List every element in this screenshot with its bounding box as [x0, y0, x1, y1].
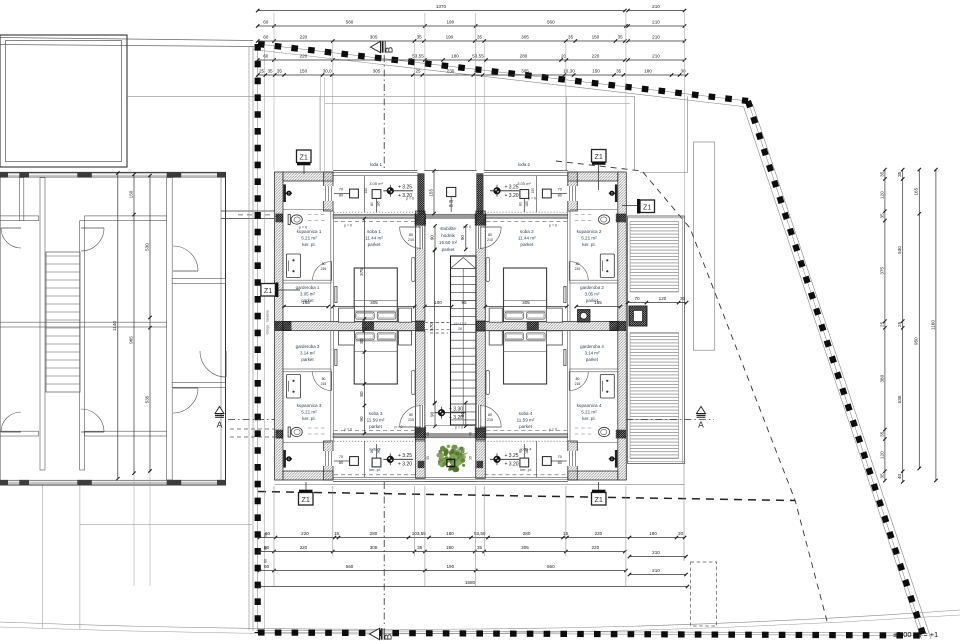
svg-text:375: 375: [879, 267, 884, 275]
svg-text:60: 60: [263, 54, 269, 59]
svg-text:1580: 1580: [465, 580, 476, 585]
svg-text:Z1: Z1: [302, 495, 310, 504]
svg-text:ker. pl.: ker. pl.: [302, 242, 316, 247]
svg-text:stubište: stubište: [440, 226, 456, 231]
svg-text:215: 215: [575, 382, 581, 386]
svg-text:210: 210: [408, 238, 414, 242]
svg-text:ker. pl.: ker. pl.: [520, 467, 532, 472]
svg-text:210: 210: [652, 20, 660, 25]
svg-text:p = 0: p = 0: [344, 428, 352, 432]
svg-text:+ 3.20: + 3.20: [505, 462, 519, 468]
svg-text:30: 30: [680, 296, 686, 301]
svg-text:965: 965: [128, 336, 133, 344]
svg-text:220: 220: [300, 35, 308, 40]
svg-text:35: 35: [277, 69, 283, 74]
svg-text:155: 155: [428, 189, 433, 197]
svg-text:parket: parket: [519, 424, 532, 429]
svg-text:165: 165: [914, 187, 919, 195]
svg-text:950: 950: [914, 337, 919, 345]
svg-text:80: 80: [488, 233, 492, 237]
svg-text:p = 0: p = 0: [528, 197, 536, 201]
svg-text:60: 60: [264, 564, 270, 569]
svg-text:560: 560: [346, 564, 354, 569]
svg-text:80: 80: [359, 338, 364, 344]
svg-text:5.21 m²: 5.21 m²: [301, 410, 317, 415]
svg-text:180: 180: [446, 531, 454, 536]
svg-text:garderoba 4: garderoba 4: [580, 344, 604, 349]
svg-text:garderoba 2: garderoba 2: [580, 285, 604, 290]
svg-text:35: 35: [897, 171, 902, 177]
svg-text:35: 35: [417, 545, 423, 550]
svg-text:parket: parket: [368, 242, 381, 247]
svg-text:lođa 2: lođa 2: [518, 162, 531, 167]
svg-text:220: 220: [300, 54, 308, 59]
svg-text:35: 35: [477, 35, 483, 40]
svg-text:90: 90: [460, 411, 465, 417]
svg-text:+ 3.25: + 3.25: [398, 453, 412, 459]
svg-text:1160: 1160: [930, 320, 935, 330]
svg-text:95: 95: [461, 300, 467, 305]
svg-text:53,55: 53,55: [412, 54, 424, 59]
svg-text:80: 80: [339, 461, 343, 465]
svg-text:305: 305: [521, 545, 529, 550]
svg-text:185: 185: [525, 201, 529, 207]
svg-text:5.21 m²: 5.21 m²: [581, 236, 597, 241]
svg-text:215: 215: [321, 267, 327, 271]
svg-text:305: 305: [370, 35, 378, 40]
svg-text:120: 120: [659, 296, 667, 301]
svg-text:3.05 m²: 3.05 m²: [300, 292, 315, 297]
svg-text:100: 100: [434, 300, 442, 305]
svg-text:60: 60: [263, 20, 269, 25]
svg-text:305: 305: [370, 545, 378, 550]
svg-text:80: 80: [359, 391, 364, 397]
svg-text:90: 90: [429, 235, 434, 241]
svg-text:35: 35: [879, 213, 884, 219]
svg-text:45: 45: [426, 432, 430, 436]
svg-text:80: 80: [449, 200, 453, 204]
svg-text:190: 190: [446, 545, 454, 550]
svg-text:B: B: [385, 46, 396, 53]
svg-text:10,30: 10,30: [563, 69, 575, 74]
svg-text:190: 190: [446, 564, 454, 569]
svg-text:garderoba 3: garderoba 3: [296, 344, 320, 349]
svg-text:60: 60: [264, 546, 268, 550]
svg-text:3.05 m²: 3.05 m²: [585, 292, 600, 297]
svg-text:35: 35: [568, 35, 574, 40]
svg-text:parket: parket: [520, 242, 533, 247]
svg-text:80: 80: [576, 262, 580, 266]
svg-text:35: 35: [616, 69, 622, 74]
svg-text:+ 3.20: + 3.20: [505, 193, 519, 199]
svg-text:ker. pl.: ker. pl.: [582, 416, 596, 421]
svg-text:60: 60: [263, 35, 269, 40]
svg-text:210: 210: [487, 238, 493, 242]
svg-text:80: 80: [576, 377, 580, 381]
svg-text:80: 80: [322, 262, 326, 266]
svg-text:25: 25: [415, 69, 421, 74]
svg-text:p = 0: p = 0: [455, 426, 463, 430]
svg-text:530: 530: [144, 243, 149, 251]
svg-text:560: 560: [547, 20, 555, 25]
svg-text:305: 305: [373, 69, 381, 74]
svg-text:60: 60: [264, 533, 268, 537]
svg-text:+ 3.25: + 3.25: [398, 184, 412, 190]
svg-text:28: 28: [458, 327, 462, 331]
svg-text:215: 215: [321, 382, 327, 386]
svg-text:35: 35: [267, 69, 273, 74]
svg-text:280: 280: [520, 54, 528, 59]
svg-text:25: 25: [897, 321, 902, 327]
svg-text:p = 0: p = 0: [344, 224, 352, 228]
svg-text:70: 70: [634, 296, 640, 301]
svg-text:3.05 m²: 3.05 m²: [369, 181, 383, 186]
svg-text:150: 150: [128, 190, 133, 198]
svg-text:kupaonica 4: kupaonica 4: [577, 403, 602, 408]
svg-text:p = 0: p = 0: [549, 428, 557, 432]
svg-text:5.21 m²: 5.21 m²: [301, 236, 317, 241]
svg-text:375: 375: [359, 268, 364, 276]
svg-text:90: 90: [429, 411, 434, 417]
svg-text:35: 35: [879, 473, 884, 479]
svg-text:210: 210: [652, 568, 660, 573]
svg-text:70: 70: [339, 188, 343, 192]
svg-text:kupaonica 3: kupaonica 3: [297, 403, 322, 408]
svg-text:parket: parket: [301, 357, 314, 362]
svg-text:35: 35: [417, 35, 423, 40]
svg-text:150: 150: [364, 188, 368, 194]
svg-text:35: 35: [469, 456, 473, 460]
svg-text:kupaonica 1: kupaonica 1: [297, 229, 322, 234]
svg-text:80: 80: [370, 202, 374, 206]
svg-text:35: 35: [879, 431, 884, 437]
svg-text:30: 30: [678, 531, 684, 536]
svg-text:70: 70: [339, 455, 343, 459]
svg-text:165: 165: [302, 300, 310, 305]
svg-text:80: 80: [339, 194, 343, 198]
svg-text:35: 35: [618, 35, 624, 40]
svg-text:210: 210: [652, 4, 660, 9]
svg-text:210: 210: [652, 550, 660, 555]
svg-text:45: 45: [469, 432, 473, 436]
svg-text:soba 3: soba 3: [369, 411, 383, 416]
svg-text:+ 3.20: + 3.20: [398, 462, 412, 468]
svg-text:5.21 m²: 5.21 m²: [581, 410, 597, 415]
svg-text:190: 190: [446, 20, 454, 25]
svg-text:35: 35: [879, 171, 884, 177]
svg-text:560: 560: [547, 564, 555, 569]
svg-text:120: 120: [879, 451, 884, 459]
svg-text:40: 40: [897, 474, 902, 480]
svg-text:Z1: Z1: [643, 203, 651, 212]
svg-text:25: 25: [879, 321, 884, 327]
svg-text:garderoba 1: garderoba 1: [296, 285, 320, 290]
svg-text:230: 230: [447, 69, 455, 74]
svg-text:150: 150: [531, 188, 535, 194]
svg-text:30: 30: [680, 69, 686, 74]
svg-text:305: 305: [370, 300, 378, 305]
svg-text:165: 165: [594, 300, 602, 305]
svg-text:80: 80: [558, 194, 562, 198]
svg-text:4.10 m²: 4.10 m²: [455, 452, 469, 456]
svg-text:60: 60: [264, 559, 268, 563]
svg-text:Z1: Z1: [264, 286, 272, 295]
svg-text:25: 25: [259, 69, 265, 74]
svg-text:215: 215: [487, 418, 493, 422]
svg-text:15.60 m²: 15.60 m²: [439, 240, 458, 245]
svg-text:p = 0: p = 0: [406, 197, 414, 201]
svg-text:3.05 m²: 3.05 m²: [517, 181, 531, 186]
svg-text:1140: 1140: [112, 321, 117, 331]
svg-text:305: 305: [522, 300, 530, 305]
svg-text:220: 220: [591, 545, 599, 550]
svg-text:80: 80: [322, 377, 326, 381]
svg-text:A: A: [698, 420, 704, 430]
svg-text:535: 535: [144, 395, 149, 403]
svg-text:80: 80: [409, 233, 413, 237]
svg-text:lođa 1: lođa 1: [370, 162, 383, 167]
svg-text:90: 90: [460, 235, 465, 241]
svg-text:ker. pl.: ker. pl.: [302, 416, 316, 421]
svg-text:70: 70: [558, 455, 562, 459]
svg-text:185: 185: [377, 201, 381, 207]
svg-text:305: 305: [521, 69, 529, 74]
svg-text:parket: parket: [442, 247, 455, 252]
svg-text:280: 280: [370, 531, 378, 536]
svg-text:30,0: 30,0: [323, 69, 332, 74]
svg-text:hodnik: hodnik: [441, 233, 455, 238]
svg-text:150: 150: [299, 69, 307, 74]
svg-text:560: 560: [346, 20, 354, 25]
svg-text:3.14 m²: 3.14 m²: [585, 351, 600, 356]
svg-text:Z1: Z1: [595, 495, 603, 504]
svg-text:305: 305: [521, 35, 529, 40]
svg-text:p = 0: p = 0: [299, 226, 307, 230]
svg-text:ker. pl.: ker. pl.: [582, 242, 596, 247]
svg-text:53,55: 53,55: [472, 54, 484, 59]
svg-text:35: 35: [477, 545, 483, 550]
svg-text:p = 0: p = 0: [394, 425, 402, 429]
svg-text:380: 380: [879, 374, 884, 382]
svg-text:220: 220: [595, 531, 603, 536]
svg-text:215: 215: [575, 267, 581, 271]
svg-text:535: 535: [897, 395, 902, 403]
svg-text:B: B: [384, 633, 395, 640]
svg-text:±0.00 el. = +1: ±0.00 el. = +1: [893, 630, 938, 639]
svg-text:80: 80: [409, 413, 413, 417]
svg-text:190: 190: [446, 35, 454, 40]
svg-text:11.59 m²: 11.59 m²: [517, 418, 535, 423]
svg-text:530: 530: [897, 246, 902, 254]
svg-text:Z1: Z1: [595, 152, 603, 161]
svg-text:80: 80: [449, 204, 453, 208]
svg-text:220: 220: [300, 545, 308, 550]
svg-text:A: A: [217, 420, 223, 430]
svg-text:lođa: lođa: [457, 447, 465, 451]
svg-text:parket: parket: [369, 424, 382, 429]
svg-text:180: 180: [649, 531, 657, 536]
svg-text:80: 80: [488, 413, 492, 417]
svg-text:180: 180: [644, 69, 652, 74]
svg-text:kupaonica 2: kupaonica 2: [577, 229, 602, 234]
svg-text:220: 220: [301, 531, 309, 536]
svg-text:11.44 m²: 11.44 m²: [518, 236, 536, 241]
svg-text:Z1: Z1: [300, 153, 308, 162]
svg-text:obloga: obloga: [266, 325, 270, 335]
svg-text:210: 210: [652, 54, 660, 59]
svg-text:150: 150: [592, 69, 600, 74]
svg-text:15: 15: [334, 531, 340, 536]
svg-text:1370: 1370: [436, 4, 447, 9]
svg-text:+ 3.30: + 3.30: [449, 406, 463, 412]
svg-text:fasadna: fasadna: [266, 310, 270, 322]
svg-text:16×17,5: 16×17,5: [453, 322, 466, 326]
svg-text:280: 280: [523, 531, 531, 536]
svg-text:ker. pl.: ker. pl.: [369, 467, 381, 472]
svg-text:+ 3.25: + 3.25: [505, 453, 519, 459]
svg-text:120: 120: [879, 191, 884, 199]
svg-text:35: 35: [426, 456, 430, 460]
svg-text:570: 570: [429, 323, 434, 331]
svg-text:70: 70: [558, 188, 562, 192]
svg-text:soba 4: soba 4: [519, 411, 533, 416]
svg-text:soba 2: soba 2: [520, 229, 534, 234]
svg-text:180: 180: [451, 54, 459, 59]
svg-text:80: 80: [558, 461, 562, 465]
svg-text:p = 0: p = 0: [549, 224, 557, 228]
svg-text:103,55: 103,55: [412, 531, 426, 536]
svg-text:80: 80: [518, 202, 522, 206]
svg-text:lođa 4: lođa 4: [521, 447, 533, 452]
svg-text:90: 90: [359, 416, 364, 422]
svg-text:soba 1: soba 1: [367, 229, 381, 234]
svg-text:3.14 m²: 3.14 m²: [300, 351, 315, 356]
svg-text:150: 150: [592, 35, 600, 40]
svg-text:11.59 m²: 11.59 m²: [367, 418, 385, 423]
svg-text:parket: parket: [586, 357, 599, 362]
svg-text:220: 220: [592, 54, 600, 59]
svg-text:11.44 m²: 11.44 m²: [365, 236, 383, 241]
svg-text:215: 215: [408, 418, 414, 422]
svg-text:210: 210: [652, 35, 660, 40]
svg-text:lođa 3: lođa 3: [370, 447, 382, 452]
